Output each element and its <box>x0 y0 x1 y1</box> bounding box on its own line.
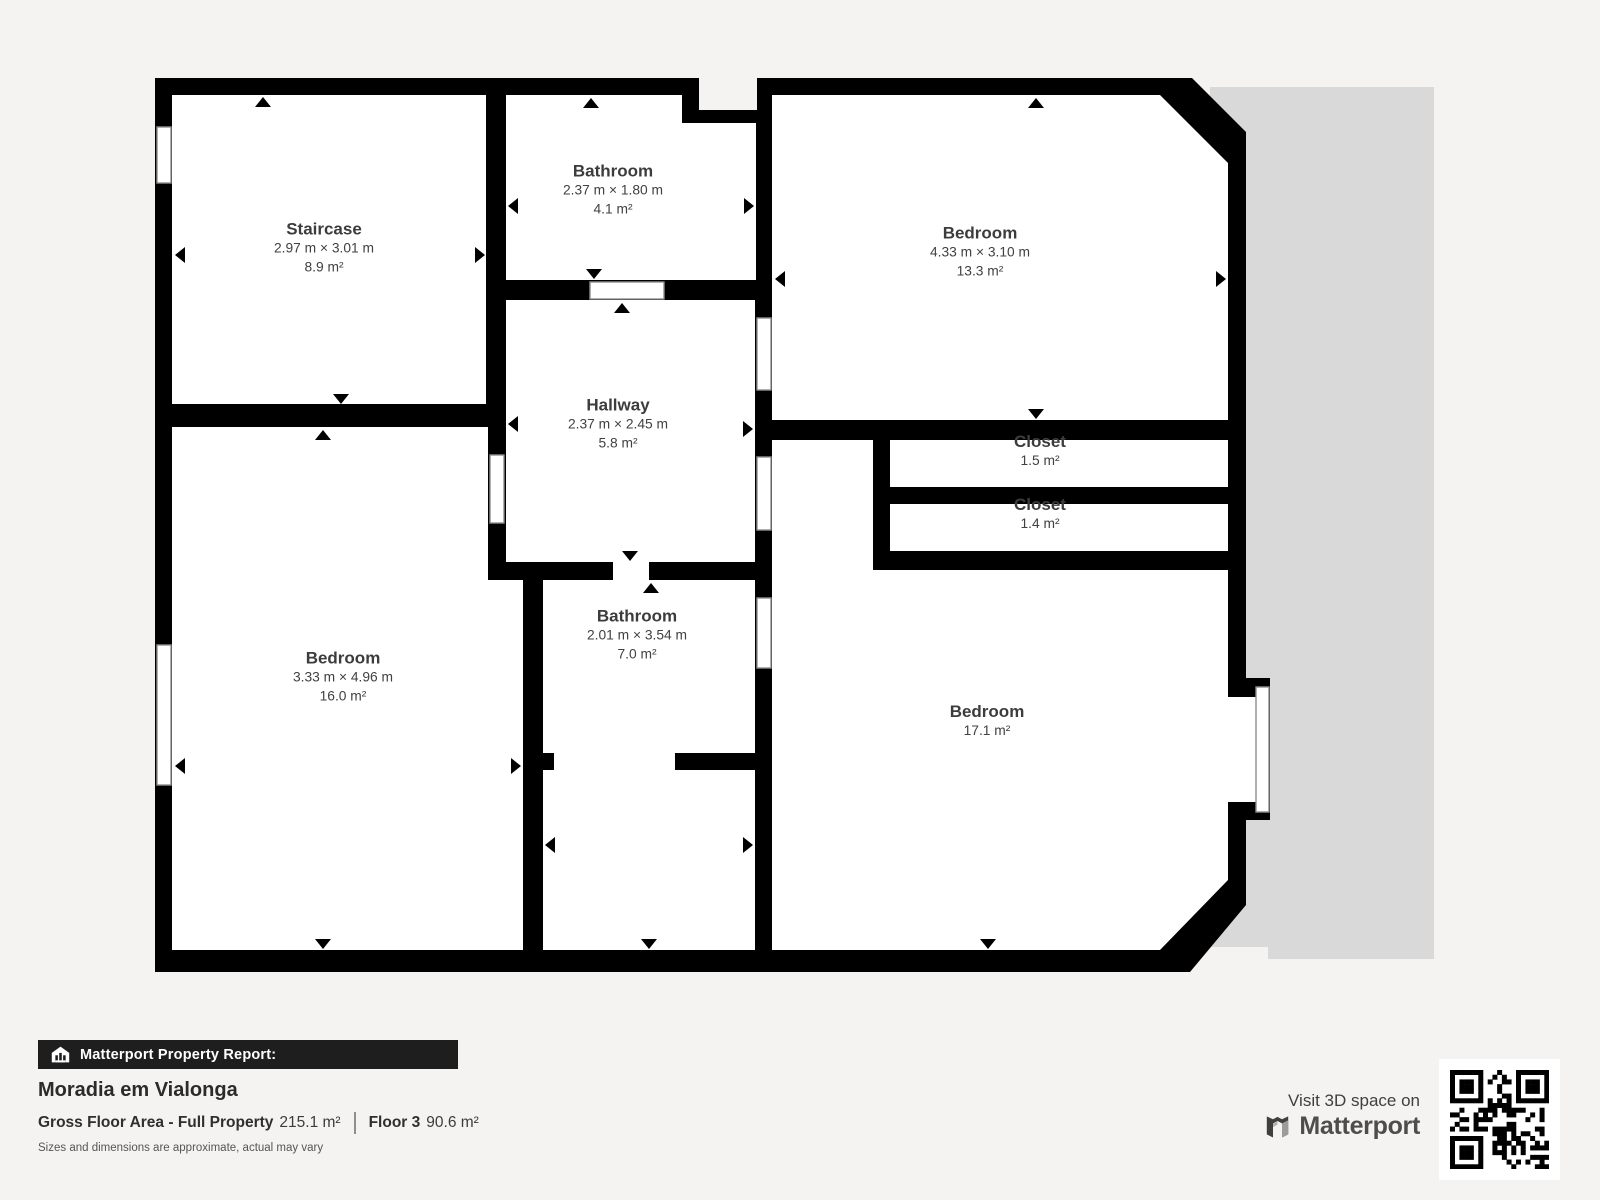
room-name: Hallway <box>568 396 668 416</box>
report-banner: Matterport Property Report: <box>38 1040 458 1069</box>
floor-bedroom-bottom-right <box>772 570 1257 950</box>
room-name: Closet <box>1014 495 1066 515</box>
room-dimensions: 3.33 m × 4.96 m <box>293 669 393 688</box>
room-label-staircase: Staircase 2.97 m × 3.01 m 8.9 m² <box>274 220 374 277</box>
room-label-bedroom-top-right: Bedroom 4.33 m × 3.10 m 13.3 m² <box>930 224 1030 281</box>
room-name: Bathroom <box>587 607 687 627</box>
room-name: Bedroom <box>930 224 1030 244</box>
matterport-wordmark: Matterport <box>1299 1112 1420 1141</box>
room-dimensions: 4.33 m × 3.10 m <box>930 244 1030 263</box>
stats-divider <box>354 1112 356 1134</box>
floor-passage <box>772 440 873 570</box>
room-area: 5.8 m² <box>568 434 668 453</box>
room-label-bedroom-bottom-right: Bedroom 17.1 m² <box>950 702 1025 741</box>
room-area: 4.1 m² <box>563 200 663 219</box>
gross-floor-area-value: 215.1 m² <box>279 1114 340 1132</box>
room-area: 7.0 m² <box>587 645 687 664</box>
room-name: Closet <box>1014 432 1066 452</box>
qr-code-matrix <box>1450 1070 1549 1169</box>
property-report-page: Staircase 2.97 m × 3.01 m 8.9 m² Bathroo… <box>0 0 1600 1200</box>
room-label-bedroom-bottom-left: Bedroom 3.33 m × 4.96 m 16.0 m² <box>293 649 393 706</box>
room-dimensions: 2.97 m × 3.01 m <box>274 240 374 259</box>
room-name: Bedroom <box>293 649 393 669</box>
stats-row: Gross Floor Area - Full Property 215.1 m… <box>38 1112 479 1134</box>
floor-area-value: 90.6 m² <box>426 1114 479 1132</box>
room-area: 8.9 m² <box>274 258 374 277</box>
room-label-bathroom-bottom: Bathroom 2.01 m × 3.54 m 7.0 m² <box>587 607 687 664</box>
floor-plan-svg <box>0 0 1600 1200</box>
room-label-hallway: Hallway 2.37 m × 2.45 m 5.8 m² <box>568 396 668 453</box>
property-title: Moradia em Vialonga <box>38 1079 238 1102</box>
room-dimensions: 2.37 m × 2.45 m <box>568 416 668 435</box>
room-area: 1.4 m² <box>1014 515 1066 534</box>
room-name: Bedroom <box>950 702 1025 722</box>
gross-floor-area-label: Gross Floor Area - Full Property <box>38 1114 273 1132</box>
report-banner-label: Matterport Property Report: <box>80 1047 276 1063</box>
floor-label: Floor 3 <box>369 1114 421 1132</box>
matterport-logo-icon <box>1264 1113 1291 1140</box>
room-label-closet-2: Closet 1.4 m² <box>1014 495 1066 534</box>
room-name: Staircase <box>274 220 374 240</box>
room-dimensions: 2.01 m × 3.54 m <box>587 627 687 646</box>
room-name: Bathroom <box>563 162 663 182</box>
room-area: 1.5 m² <box>1014 452 1066 471</box>
room-label-closet-1: Closet 1.5 m² <box>1014 432 1066 471</box>
room-label-bathroom-top: Bathroom 2.37 m × 1.80 m 4.1 m² <box>563 162 663 219</box>
room-area: 13.3 m² <box>930 262 1030 281</box>
qr-code[interactable] <box>1439 1059 1560 1180</box>
room-area: 17.1 m² <box>950 722 1025 741</box>
room-dimensions: 2.37 m × 1.80 m <box>563 182 663 201</box>
house-icon <box>51 1045 70 1064</box>
visit-3d-text: Visit 3D space on <box>1288 1091 1420 1111</box>
disclaimer-text: Sizes and dimensions are approximate, ac… <box>38 1142 323 1154</box>
room-area: 16.0 m² <box>293 687 393 706</box>
matterport-logo[interactable]: Matterport <box>1264 1112 1420 1141</box>
